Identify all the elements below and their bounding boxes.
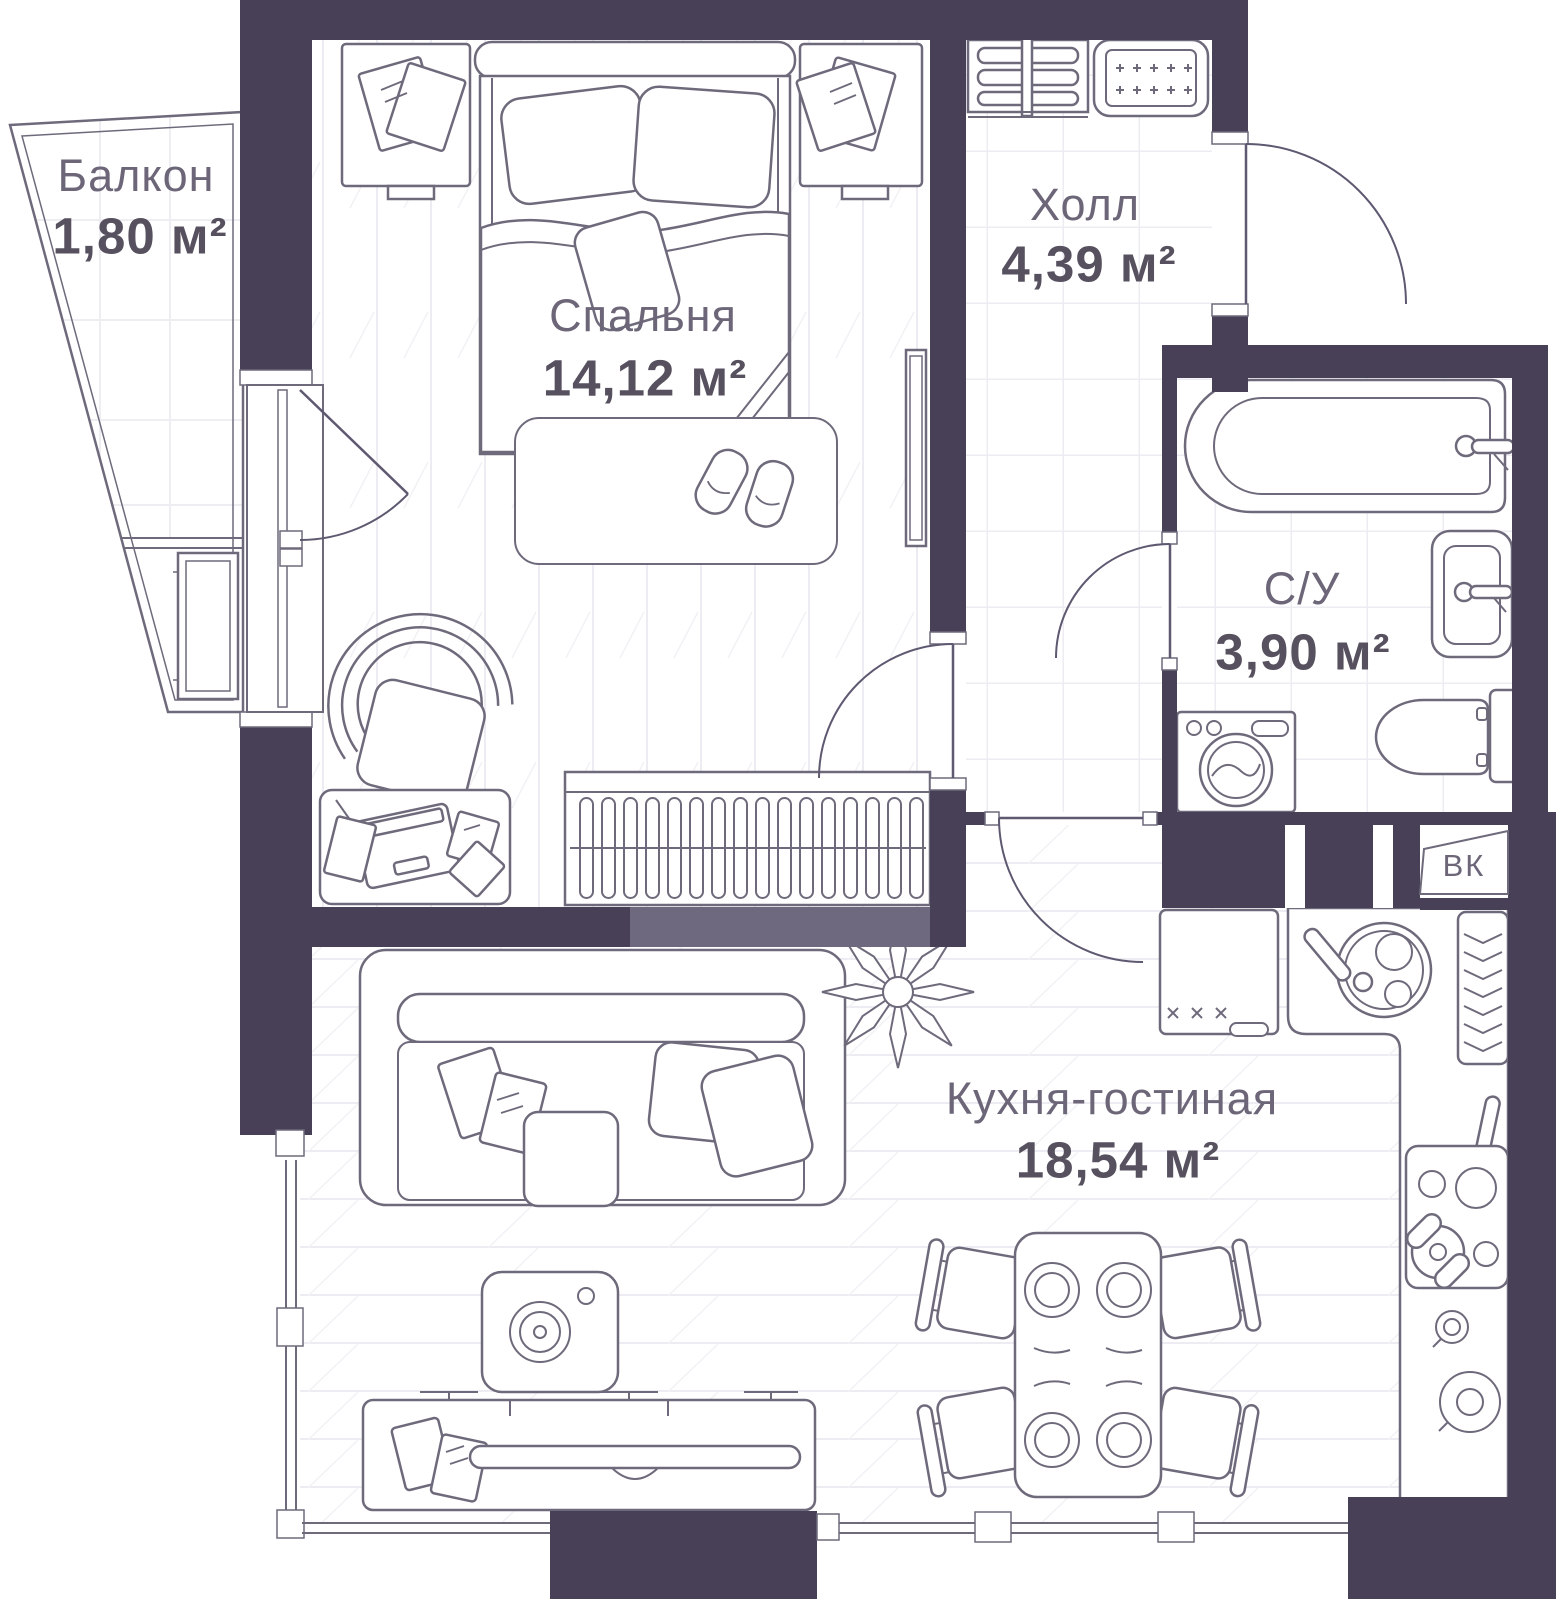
bedroom-name: Спальня (549, 290, 737, 342)
pillow (632, 85, 776, 208)
hall-bench (1094, 40, 1208, 116)
kitchen-living-area: 18,54 м² (1016, 1131, 1221, 1190)
hall-name: Холл (1030, 179, 1140, 231)
left-window (276, 1130, 304, 1538)
balcony-area: 1,80 м² (52, 207, 227, 266)
entry-door (1246, 144, 1406, 304)
tv-console (363, 1392, 815, 1510)
wall-mirror (906, 350, 926, 546)
washing-machine (1177, 712, 1295, 812)
kitchen-cabinet (1160, 910, 1278, 1036)
balcony-divider (121, 538, 243, 548)
bedroom-area: 14,12 м² (543, 349, 748, 408)
bathtub (1185, 380, 1514, 512)
rug (515, 418, 837, 564)
bathroom-area: 3,90 м² (1215, 623, 1390, 682)
cooktop (1403, 1146, 1508, 1292)
corridor-floor (966, 825, 1162, 947)
hall-floor-lower (966, 392, 1162, 812)
coat-rack (968, 36, 1088, 117)
hall-area: 4,39 м² (1001, 235, 1176, 294)
bathroom-name: С/У (1264, 563, 1341, 615)
nightstand-left (342, 44, 470, 199)
nightstand-right (796, 44, 922, 199)
tv (470, 1446, 800, 1468)
bathroom-sink (1432, 531, 1512, 657)
sofa (360, 950, 845, 1206)
headboard (475, 42, 795, 78)
flower-box (173, 553, 238, 699)
balcony-door-window (247, 385, 323, 712)
dish-rack (1458, 912, 1508, 1064)
floor-plan-drawing (0, 0, 1556, 1599)
duct-label: ВК (1443, 848, 1486, 884)
partition-wall (630, 907, 930, 947)
desk (320, 790, 510, 904)
pillow (499, 84, 651, 206)
balcony-name: Балкон (58, 150, 215, 202)
kitchen-living-name: Кухня-гостиная (946, 1073, 1278, 1125)
floor-plan: Балкон 1,80 м² Спальня 14,12 м² Холл 4,3… (0, 0, 1556, 1599)
coffee-table (482, 1272, 618, 1392)
wardrobe (565, 772, 930, 905)
